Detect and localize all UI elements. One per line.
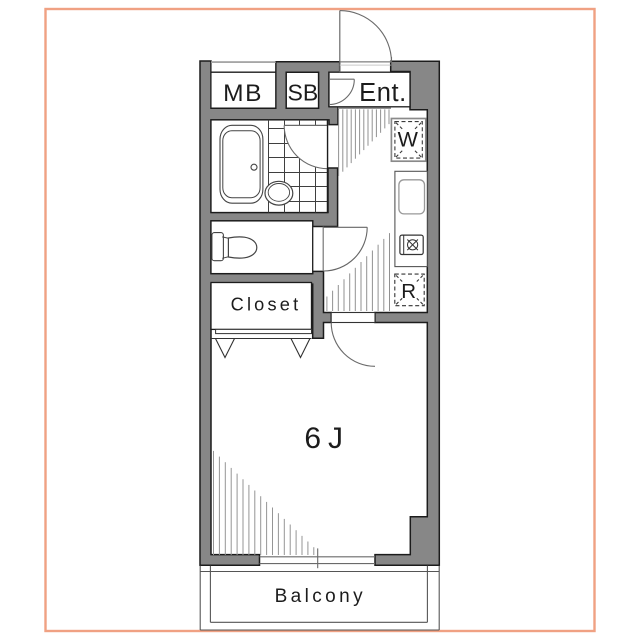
- svg-text:Balcony: Balcony: [275, 586, 366, 607]
- svg-text:MB: MB: [223, 80, 263, 107]
- svg-text:W: W: [398, 128, 419, 152]
- svg-text:R: R: [401, 280, 416, 303]
- svg-text:Closet: Closet: [231, 295, 302, 315]
- svg-text:SB: SB: [288, 79, 319, 105]
- svg-text:6J: 6J: [304, 422, 350, 455]
- svg-text:Ent.: Ent.: [359, 79, 407, 107]
